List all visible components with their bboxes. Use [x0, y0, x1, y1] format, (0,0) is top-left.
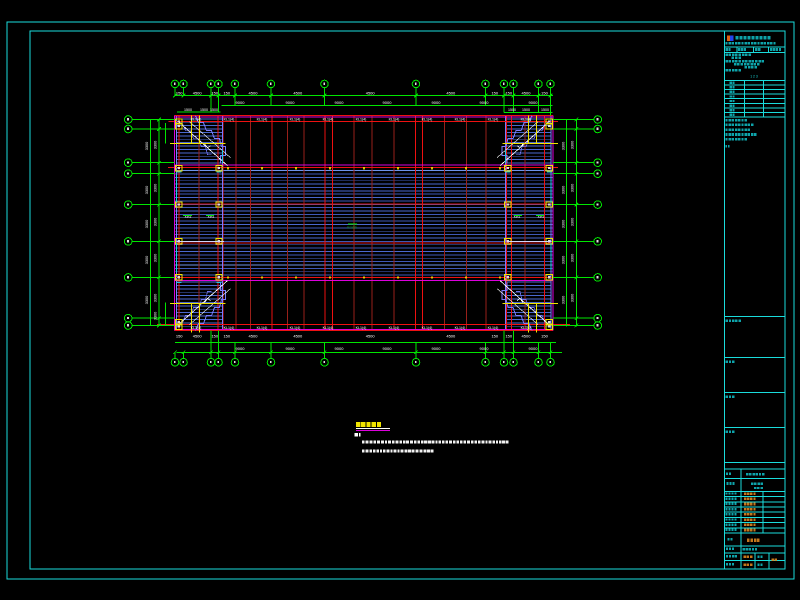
svg-text:KL1(4): KL1(4) — [224, 326, 235, 330]
svg-text:1500: 1500 — [200, 108, 208, 112]
svg-text:1500: 1500 — [541, 108, 549, 112]
svg-text:3300: 3300 — [571, 254, 575, 262]
svg-text:1500: 1500 — [508, 108, 516, 112]
svg-text:KL1(4): KL1(4) — [488, 117, 499, 121]
svg-text:150: 150 — [491, 333, 498, 338]
svg-text:3300: 3300 — [145, 142, 149, 150]
svg-text:KL1(4): KL1(4) — [521, 326, 532, 330]
svg-text:150: 150 — [505, 90, 512, 95]
svg-text:9000: 9000 — [286, 346, 296, 351]
svg-text:KL1(4): KL1(4) — [290, 117, 301, 121]
svg-text:3300: 3300 — [154, 141, 158, 149]
svg-text:3300: 3300 — [145, 296, 149, 304]
svg-text:KL1(4): KL1(4) — [455, 117, 466, 121]
svg-text:4500: 4500 — [249, 333, 259, 338]
svg-text:KL1(4): KL1(4) — [323, 326, 334, 330]
svg-text:9000: 9000 — [383, 100, 393, 105]
svg-text:4500: 4500 — [446, 333, 456, 338]
svg-text:9000: 9000 — [286, 100, 296, 105]
svg-text:KL1(4): KL1(4) — [422, 117, 433, 121]
svg-text:1500: 1500 — [184, 108, 192, 112]
svg-text:3300: 3300 — [145, 186, 149, 194]
svg-text:4500: 4500 — [293, 333, 303, 338]
svg-text:4500: 4500 — [293, 90, 303, 95]
svg-text:3300: 3300 — [571, 184, 575, 192]
svg-text:KL1(4): KL1(4) — [290, 326, 301, 330]
svg-text:9000: 9000 — [236, 346, 246, 351]
svg-text:4500: 4500 — [366, 333, 376, 338]
svg-text:3300: 3300 — [154, 254, 158, 262]
svg-text:150: 150 — [211, 90, 218, 95]
svg-text:4500: 4500 — [249, 90, 259, 95]
svg-text:9000: 9000 — [383, 346, 393, 351]
svg-text:3300: 3300 — [154, 294, 158, 302]
svg-text:4500: 4500 — [522, 90, 532, 95]
svg-text:3300: 3300 — [562, 220, 566, 228]
svg-text:KL1(4): KL1(4) — [356, 326, 367, 330]
svg-text:KL1(4): KL1(4) — [257, 117, 268, 121]
svg-text:150: 150 — [491, 90, 498, 95]
svg-text:150: 150 — [223, 333, 230, 338]
svg-text:150: 150 — [211, 333, 218, 338]
svg-text:150: 150 — [176, 333, 183, 338]
svg-text:KL1(4): KL1(4) — [389, 117, 400, 121]
svg-text:1500: 1500 — [522, 108, 530, 112]
svg-text:9000: 9000 — [335, 100, 345, 105]
svg-text:4500: 4500 — [366, 90, 376, 95]
svg-text:150: 150 — [176, 90, 183, 95]
svg-text:3300: 3300 — [145, 220, 149, 228]
svg-text:3300: 3300 — [571, 294, 575, 302]
svg-text:KL1(4): KL1(4) — [488, 326, 499, 330]
svg-text:9000: 9000 — [480, 100, 490, 105]
svg-text:KL1(4): KL1(4) — [224, 117, 235, 121]
svg-text:KL1(4): KL1(4) — [422, 326, 433, 330]
svg-text:150: 150 — [541, 90, 548, 95]
svg-text:150: 150 — [223, 90, 230, 95]
svg-text:9000: 9000 — [529, 100, 539, 105]
svg-text:9000: 9000 — [335, 346, 345, 351]
svg-text:3300: 3300 — [562, 186, 566, 194]
svg-text:4500: 4500 — [193, 90, 203, 95]
svg-text:3300: 3300 — [562, 256, 566, 264]
svg-text:3300: 3300 — [571, 218, 575, 226]
svg-text:4500: 4500 — [446, 90, 456, 95]
svg-text:3300: 3300 — [154, 218, 158, 226]
svg-text:4500: 4500 — [193, 333, 203, 338]
svg-text:150: 150 — [541, 333, 548, 338]
svg-text:3300: 3300 — [145, 256, 149, 264]
svg-text:h=120: h=120 — [348, 226, 357, 230]
svg-text:3300: 3300 — [154, 184, 158, 192]
svg-text:9000: 9000 — [432, 346, 442, 351]
svg-text:KL1(4): KL1(4) — [191, 326, 202, 330]
svg-text:KL1(4): KL1(4) — [323, 117, 334, 121]
svg-text:3300: 3300 — [154, 312, 158, 320]
svg-text:9000: 9000 — [432, 100, 442, 105]
svg-text:KL1(4): KL1(4) — [356, 117, 367, 121]
svg-text:3300: 3300 — [562, 296, 566, 304]
svg-text:3300: 3300 — [562, 142, 566, 150]
svg-text:1500: 1500 — [210, 108, 218, 112]
svg-text:KL1(4): KL1(4) — [257, 326, 268, 330]
svg-text:9000: 9000 — [529, 346, 539, 351]
svg-text:KL1(4): KL1(4) — [191, 117, 202, 121]
svg-text:KL1(4): KL1(4) — [389, 326, 400, 330]
svg-text:9000: 9000 — [480, 346, 490, 351]
svg-text:KL1(4): KL1(4) — [521, 117, 532, 121]
svg-text:9000: 9000 — [236, 100, 246, 105]
svg-text:3300: 3300 — [571, 141, 575, 149]
svg-text:1 2 3: 1 2 3 — [750, 75, 758, 79]
svg-text:KL1(4): KL1(4) — [455, 326, 466, 330]
svg-text:4500: 4500 — [522, 333, 532, 338]
svg-text:150: 150 — [505, 333, 512, 338]
